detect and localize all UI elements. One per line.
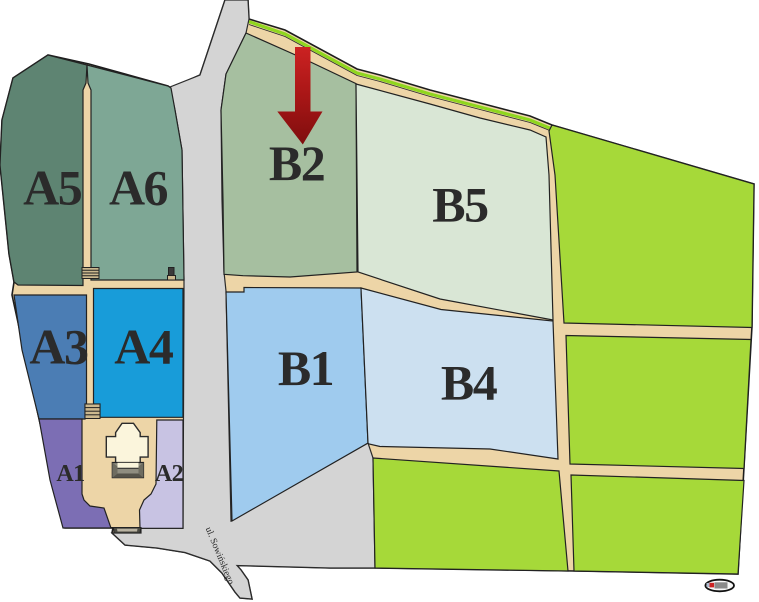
svg-text:B1: B1 [278, 340, 333, 396]
svg-text:A6: A6 [109, 160, 168, 216]
svg-text:B4: B4 [441, 355, 498, 411]
svg-text:B5: B5 [432, 176, 488, 232]
svg-text:A2: A2 [155, 461, 183, 487]
svg-text:A3: A3 [29, 319, 88, 375]
svg-text:A5: A5 [23, 160, 82, 216]
svg-text:A4: A4 [114, 319, 174, 375]
svg-text:A1: A1 [56, 461, 84, 487]
svg-text:B2: B2 [269, 135, 324, 191]
